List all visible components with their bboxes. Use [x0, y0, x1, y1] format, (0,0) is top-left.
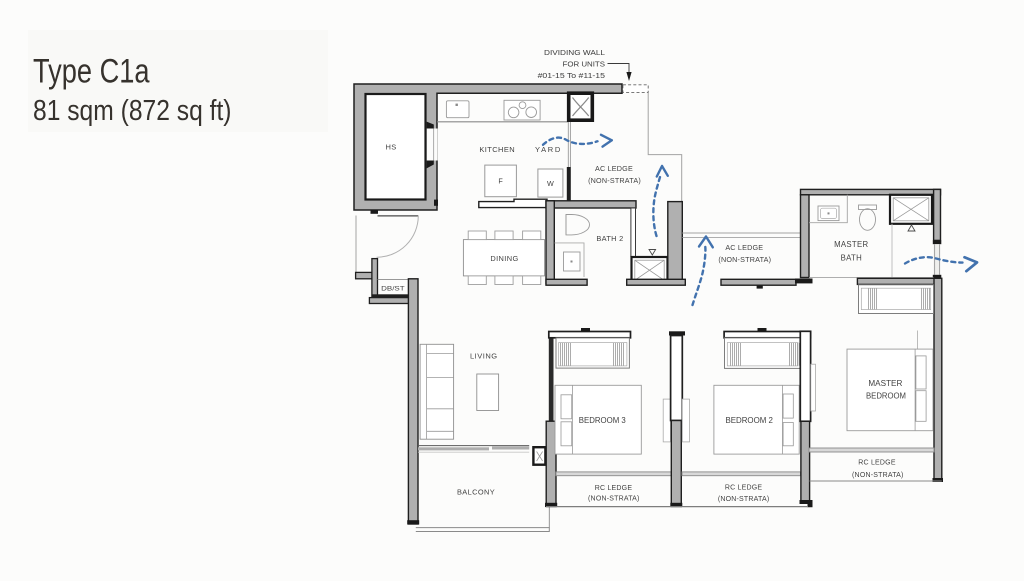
svg-text:BATH: BATH [841, 254, 862, 263]
svg-text:DIVIDING WALL: DIVIDING WALL [544, 48, 605, 57]
svg-text:F: F [498, 177, 503, 186]
svg-text:81 sqm (872 sq ft): 81 sqm (872 sq ft) [33, 95, 232, 127]
svg-text:DB/ST: DB/ST [381, 285, 405, 292]
svg-text:RC LEDGE: RC LEDGE [725, 485, 763, 492]
svg-text:BALCONY: BALCONY [457, 488, 495, 497]
svg-text:DINING: DINING [490, 254, 518, 263]
svg-text:(NON-STRATA): (NON-STRATA) [718, 255, 771, 264]
svg-text:YARD: YARD [535, 145, 562, 154]
svg-text:#01-15 To #11-15: #01-15 To #11-15 [538, 71, 605, 80]
svg-text:RC LEDGE: RC LEDGE [858, 460, 896, 467]
svg-text:(NON-STRATA): (NON-STRATA) [718, 496, 770, 503]
svg-text:BEDROOM 2: BEDROOM 2 [725, 416, 773, 425]
svg-text:LIVING: LIVING [470, 352, 498, 361]
svg-text:(NON-STRATA): (NON-STRATA) [852, 472, 904, 479]
svg-text:RC LEDGE: RC LEDGE [595, 485, 633, 492]
svg-text:MASTER: MASTER [834, 240, 868, 249]
svg-text:MASTER: MASTER [868, 379, 902, 388]
svg-text:BEDROOM 3: BEDROOM 3 [579, 416, 627, 425]
svg-text:HS: HS [385, 143, 396, 152]
svg-text:W: W [547, 179, 554, 188]
svg-text:AC LEDGE: AC LEDGE [595, 164, 633, 173]
svg-text:(NON-STRATA): (NON-STRATA) [588, 495, 640, 502]
svg-text:AC LEDGE: AC LEDGE [725, 243, 763, 252]
svg-text:(NON-STRATA): (NON-STRATA) [588, 176, 641, 185]
svg-text:BEDROOM: BEDROOM [866, 392, 906, 401]
svg-text:KITCHEN: KITCHEN [479, 145, 515, 154]
svg-text:Type C1a: Type C1a [33, 53, 150, 91]
svg-text:BATH 2: BATH 2 [596, 234, 623, 243]
svg-text:FOR UNITS: FOR UNITS [563, 59, 606, 68]
